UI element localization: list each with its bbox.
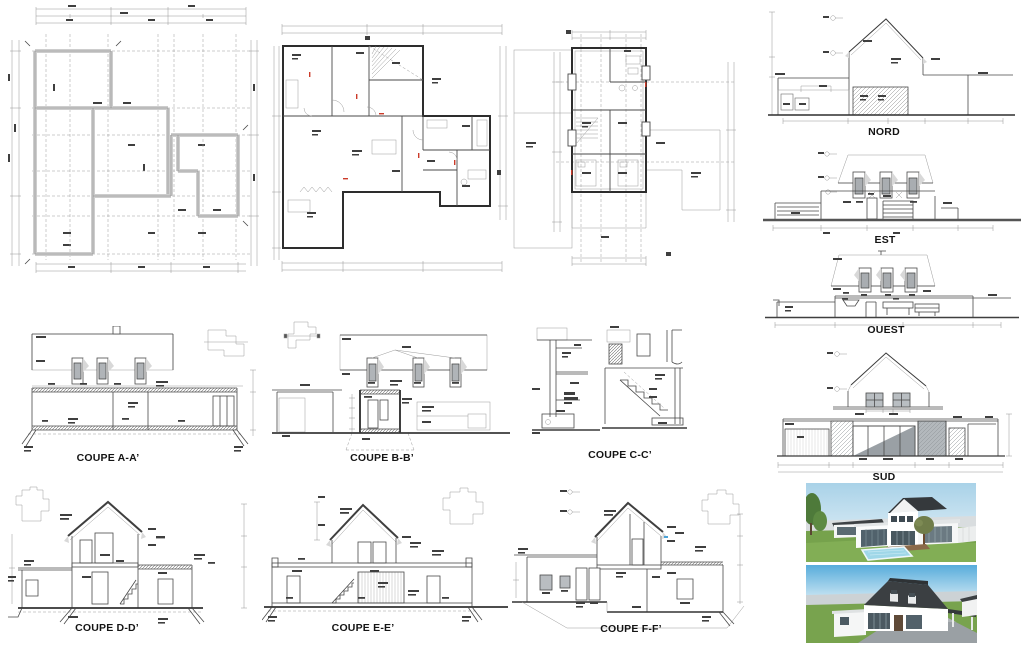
panel-coupe-cc: COUPE C-C’: [512, 322, 748, 462]
coupe-ff-label: COUPE F-F’: [600, 623, 662, 635]
panel-foundation-plan: [8, 4, 260, 278]
coupe-ff-drawing: [512, 484, 772, 636]
coupe-dd-label: COUPE D-D’: [75, 622, 139, 634]
render-garden-pool-image: [806, 483, 976, 562]
upper-floor-plan-drawing: [506, 22, 750, 272]
panel-render-entrance-drive: [806, 565, 977, 643]
coupe-cc-drawing: [512, 322, 748, 462]
coupe-aa-label: COUPE A-A’: [77, 452, 140, 464]
panel-ground-floor-plan: [272, 20, 512, 276]
foundation-plan-drawing: [8, 4, 260, 278]
elevation-est-label: EST: [874, 234, 895, 246]
coupe-cc-label: COUPE C-C’: [588, 449, 652, 461]
coupe-ee-drawing: [262, 484, 512, 636]
panel-upper-floor-plan: [506, 22, 750, 272]
coupe-dd-drawing: [8, 484, 260, 636]
coupe-bb-label: COUPE B-B’: [350, 452, 414, 464]
panel-coupe-dd: COUPE D-D’: [8, 484, 260, 636]
elevation-sud-drawing: [763, 344, 1023, 484]
coupe-aa-drawing: [18, 326, 270, 468]
panel-coupe-ee: COUPE E-E’: [262, 484, 512, 636]
elevation-nord-drawing: [763, 2, 1023, 140]
panel-coupe-ff: COUPE F-F’: [512, 484, 772, 636]
architectural-drawing-sheet: NORD: [0, 0, 1024, 646]
panel-coupe-bb: COUPE B-B’: [272, 318, 510, 468]
panel-elevation-sud: SUD: [763, 344, 1023, 484]
render-entrance-drive-image: [806, 565, 977, 643]
elevation-sud-label: SUD: [873, 471, 896, 483]
panel-elevation-ouest: OUEST: [763, 250, 1023, 336]
panel-elevation-est: EST: [763, 146, 1023, 246]
ground-floor-plan-drawing: [272, 20, 512, 276]
coupe-bb-drawing: [272, 318, 510, 468]
panel-coupe-aa: COUPE A-A’: [18, 326, 270, 468]
panel-elevation-nord: NORD: [763, 2, 1023, 140]
coupe-ee-label: COUPE E-E’: [332, 622, 395, 634]
panel-render-garden-pool: [806, 483, 976, 562]
elevation-nord-label: NORD: [868, 126, 900, 138]
elevation-est-drawing: [763, 146, 1023, 246]
elevation-ouest-label: OUEST: [867, 324, 904, 336]
